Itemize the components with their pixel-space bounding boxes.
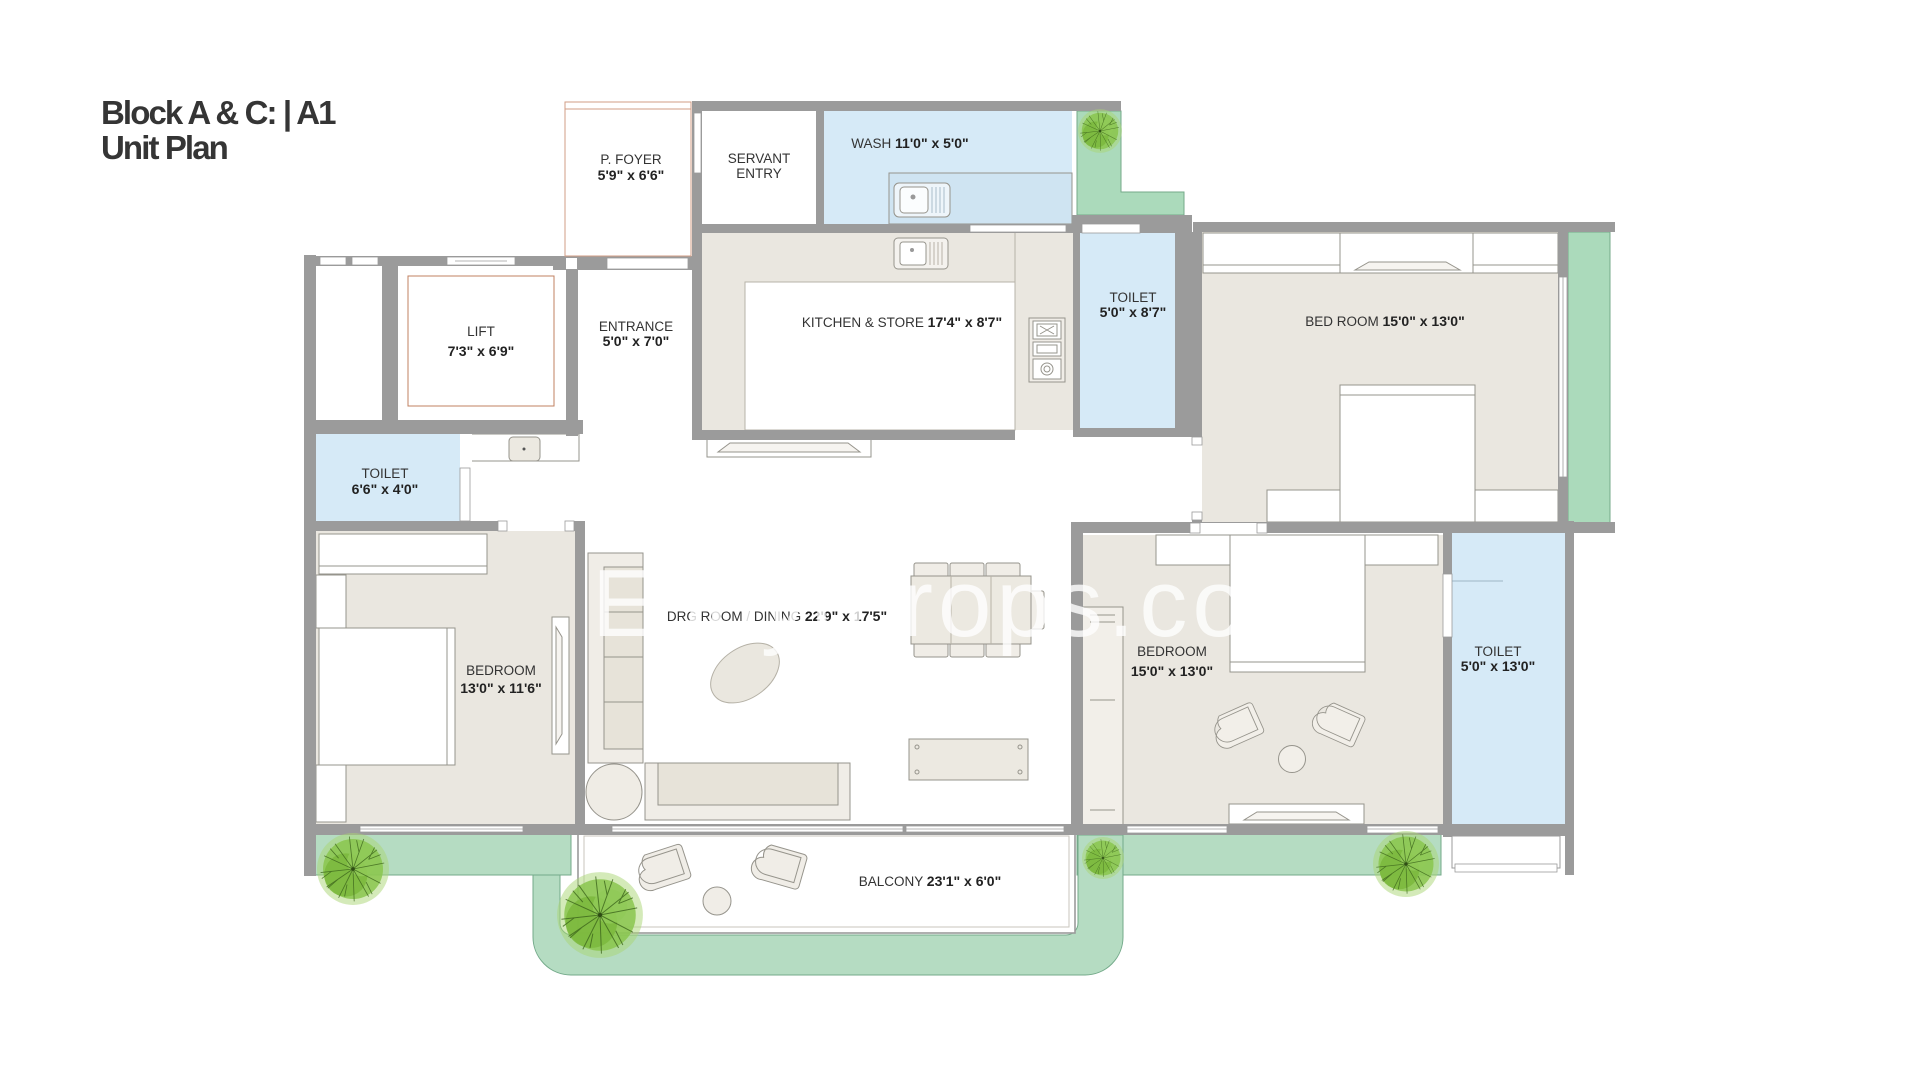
svg-text:TOILET: TOILET — [1474, 644, 1521, 659]
svg-text:5'0" x 13'0": 5'0" x 13'0" — [1461, 658, 1535, 674]
svg-text:TOILET: TOILET — [361, 466, 408, 481]
svg-text:5'0" x 7'0": 5'0" x 7'0" — [603, 333, 670, 349]
svg-text:5'0" x 8'7": 5'0" x 8'7" — [1100, 304, 1167, 320]
svg-text:BED ROOM 15'0" x 13'0": BED ROOM 15'0" x 13'0" — [1305, 313, 1464, 329]
svg-text:P. FOYER: P. FOYER — [600, 152, 662, 167]
svg-text:KITCHEN & STORE 17'4" x 8'7": KITCHEN & STORE 17'4" x 8'7" — [802, 314, 1002, 330]
svg-text:BALCONY 23'1" x 6'0": BALCONY 23'1" x 6'0" — [859, 873, 1001, 889]
svg-text:buyp: buyp — [650, 550, 866, 657]
svg-text:7'3" x 6'9": 7'3" x 6'9" — [448, 343, 515, 359]
svg-text:rops.co: rops.co — [901, 550, 1251, 657]
svg-text:5'9" x 6'6": 5'9" x 6'6" — [598, 167, 665, 183]
svg-text:15'0" x 13'0": 15'0" x 13'0" — [1131, 663, 1213, 679]
svg-text:TOILET: TOILET — [1109, 290, 1156, 305]
svg-text:13'0" x 11'6": 13'0" x 11'6" — [460, 680, 541, 696]
svg-text:6'6" x 4'0": 6'6" x 4'0" — [352, 481, 419, 497]
svg-text:BEDROOM: BEDROOM — [466, 663, 536, 678]
svg-text:ENTRANCE: ENTRANCE — [599, 319, 673, 334]
svg-text:WASH 11'0" x 5'0": WASH 11'0" x 5'0" — [851, 135, 968, 151]
svg-text:SERVANT: SERVANT — [728, 151, 791, 166]
svg-text:E: E — [592, 550, 656, 657]
svg-text:LIFT: LIFT — [467, 324, 495, 339]
svg-text:ENTRY: ENTRY — [736, 166, 782, 181]
